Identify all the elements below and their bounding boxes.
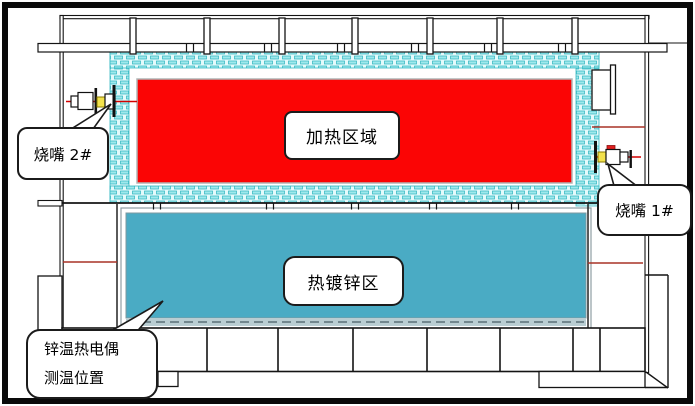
base-lip [539,372,645,388]
left-deck-stub [38,201,62,207]
galvanizing-zone-label: 热镀锌区 [283,256,404,306]
left-step-box [38,276,62,333]
heating-zone-label: 加热区域 [284,111,400,160]
heating-zone-label-text: 加热区域 [306,123,378,148]
insulation-band-left [110,46,129,203]
burner1-icon [594,141,641,173]
peephole-box [592,70,612,110]
burner1-callout: 烧嘴 1# [597,184,692,236]
burner2-callout: 烧嘴 2# [17,127,109,180]
burner2-callout-text: 烧嘴 2# [34,143,93,165]
thermocouple-callout-line2: 测温位置 [44,364,104,393]
furnace-diagram: 加热区域 热镀锌区 烧嘴 2# 烧嘴 1# 锌温热电偶 测温位置 [0,0,695,406]
base-notch [158,372,178,387]
thermocouple-callout-line1: 锌温热电偶 [44,335,119,364]
thermocouple-callout: 锌温热电偶 测温位置 [26,329,158,399]
insulation-band-bottom [110,186,599,203]
burner1-callout-text: 烧嘴 1# [615,199,674,221]
peephole-cap [611,65,616,114]
galvanizing-zone-label-text: 热镀锌区 [308,269,380,294]
